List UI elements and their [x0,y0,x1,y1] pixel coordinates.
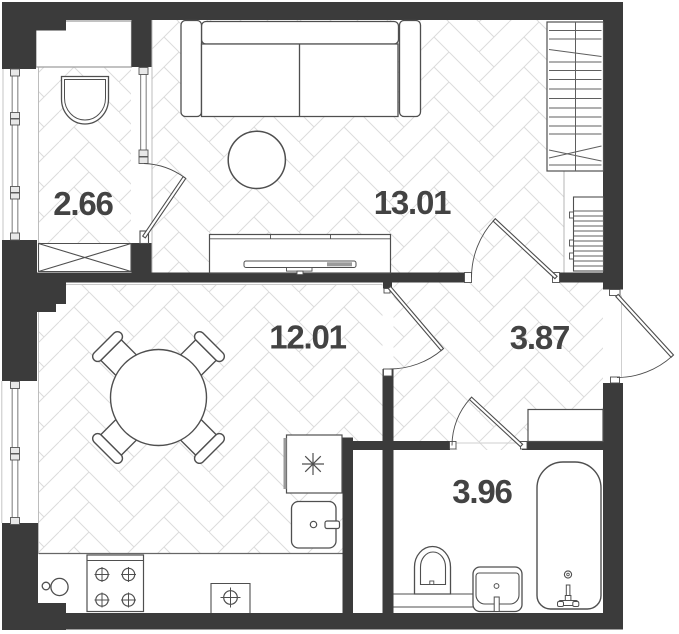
svg-text:12.01: 12.01 [269,319,346,356]
svg-text:13.01: 13.01 [374,184,451,221]
svg-text:3.96: 3.96 [452,473,512,510]
svg-text:2.66: 2.66 [53,185,113,222]
svg-text:3.87: 3.87 [510,319,569,356]
